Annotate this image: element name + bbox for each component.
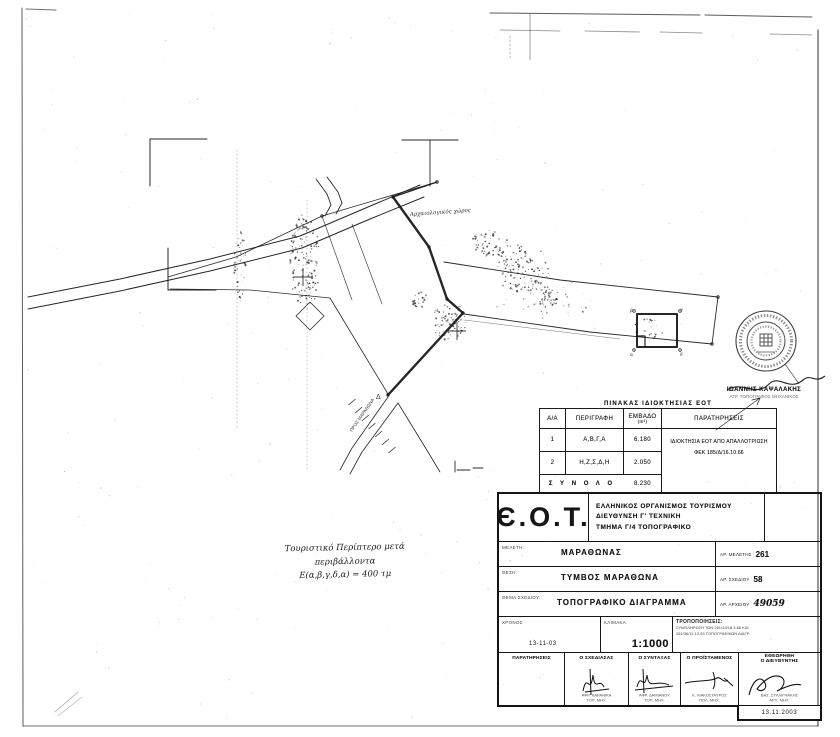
handnote-line1: Τουριστικό Περίπτερο μετά περιβάλλοντα xyxy=(255,540,436,571)
vegetation-dot xyxy=(505,261,506,262)
vegetation-dot xyxy=(521,246,523,248)
vegetation-dot xyxy=(624,110,625,111)
vegetation-dot xyxy=(235,266,236,267)
vegetation-dot xyxy=(413,302,415,304)
vegetation-dot xyxy=(241,259,242,260)
vegetation-dot xyxy=(286,348,287,349)
vegetation-dot xyxy=(460,304,461,305)
vegetation-dot xyxy=(533,303,535,305)
vegetation-dot xyxy=(780,486,781,487)
vegetation-dot xyxy=(121,171,122,172)
vegetation-dot xyxy=(243,291,244,292)
vegetation-dot xyxy=(505,276,506,277)
vegetation-dot xyxy=(310,303,311,304)
vegetation-dot xyxy=(528,262,530,264)
vegetation-dot xyxy=(309,297,310,298)
vegetation-dot xyxy=(145,582,146,583)
thema-label: ΘΕΜΑ ΣΧΕΔΙΟΥ: xyxy=(502,595,541,600)
vegetation-dot xyxy=(521,249,522,250)
vegetation-dot xyxy=(448,338,449,339)
vegetation-dot xyxy=(296,224,298,226)
vegetation-dot xyxy=(244,277,245,278)
vegetation-dot xyxy=(449,323,451,325)
thema-value: ΤΟΠΟΓΡΑΦΙΚΟ ΔΙΑΓΡΑΜΜΑ xyxy=(557,598,687,607)
vegetation-dot xyxy=(533,271,535,273)
vegetation-dot xyxy=(387,626,388,627)
vegetation-dot xyxy=(505,281,507,283)
proistamenos-title-line: ΠΟΛ. ΜΗΧ. xyxy=(687,698,733,703)
vegetation-dot xyxy=(485,233,487,235)
syntaxas-name: ΑΦΡ. ΔΑΜΙΑΝΟΥ ΤΟΠ. ΜΗΧ. xyxy=(634,694,675,703)
vegetation-dot xyxy=(472,238,474,240)
vegetation-dot xyxy=(532,288,533,289)
vegetation-dot xyxy=(453,313,454,314)
vegetation-dot xyxy=(302,224,304,226)
vegetation-dot xyxy=(444,318,445,319)
org-line1: ΕΛΛΗΝΙΚΟΣ ΟΡΓΑΝΙΣΜΟΣ ΤΟΥΡΙΣΜΟΥ xyxy=(596,502,764,512)
vegetation-dot xyxy=(458,333,459,334)
vegetation-dot xyxy=(460,319,462,321)
vegetation-dot xyxy=(443,317,444,318)
vegetation-dot xyxy=(236,243,237,244)
vegetation-dot xyxy=(316,263,317,264)
survey-peg xyxy=(679,349,682,352)
vegetation-dot xyxy=(563,305,565,307)
vegetation-dot xyxy=(314,271,315,272)
vegetation-dot xyxy=(522,273,524,275)
vegetation-dot xyxy=(299,291,300,292)
ar-sxediou-cell: ΑΡ. ΣΧΕΔΙΟΥ 58 xyxy=(716,567,820,591)
vegetation-dot xyxy=(308,286,310,288)
vegetation-dot xyxy=(654,336,656,338)
vegetation-dot xyxy=(243,240,245,242)
vegetation-dot xyxy=(165,40,166,41)
vegetation-dot xyxy=(415,295,416,296)
vegetation-dot xyxy=(184,597,185,598)
ar-meletis-cell: ΑΡ. ΜΕΛΕΤΗΣ 261 xyxy=(716,542,820,566)
vegetation-dot xyxy=(373,179,374,180)
vegetation-dot xyxy=(477,240,478,241)
vegetation-dot xyxy=(544,296,546,298)
vegetation-dot xyxy=(297,300,299,302)
signature-row: ΠΑΡΑΤΗΡΗΣΕΙΣ Ο ΣΧΕΔΙΑΣΑΣ ΑΦΡ. ΚΑΡΑΝΙΚΑ Τ… xyxy=(499,653,820,705)
vegetation-dot xyxy=(502,252,503,253)
vegetation-dot xyxy=(485,89,486,90)
vegetation-dot xyxy=(550,302,551,303)
road-hatch-tick xyxy=(382,439,389,445)
vegetation-dot xyxy=(794,482,795,483)
vegetation-dot xyxy=(498,238,500,240)
vegetation-dot xyxy=(593,325,594,326)
vegetation-dot xyxy=(530,262,531,263)
vegetation-dot xyxy=(541,289,543,291)
vegetation-dot xyxy=(299,227,301,229)
vegetation-dot xyxy=(492,470,493,471)
vegetation-dot xyxy=(530,260,532,262)
vegetation-dot xyxy=(476,247,478,249)
vegetation-dot xyxy=(310,292,311,293)
vegetation-dot xyxy=(452,324,453,325)
vegetation-dot xyxy=(349,293,350,294)
vegetation-dot xyxy=(540,282,542,284)
vegetation-dot xyxy=(481,250,483,252)
vegetation-dot xyxy=(292,235,294,237)
vegetation-dot xyxy=(124,100,125,101)
vegetation-dot xyxy=(125,134,126,135)
vegetation-dot xyxy=(568,306,570,308)
vegetation-dot xyxy=(581,306,582,307)
vegetation-dot xyxy=(453,323,454,324)
vegetation-dot xyxy=(312,281,314,283)
vegetation-dot xyxy=(43,129,44,130)
vegetation-dot xyxy=(465,322,466,323)
vegetation-dot xyxy=(295,232,296,233)
vegetation-dot xyxy=(310,251,311,252)
vegetation-dot xyxy=(473,176,474,177)
vegetation-dot xyxy=(426,712,427,713)
vegetation-dot xyxy=(514,259,515,260)
tropopoiiseis-cell: ΤΡΟΠΟΠΟΙΗΣΕΙΣ: ΣΥΜΠΛΗΡΩΣΗ ΤΩΝ 261/13/18.… xyxy=(673,617,820,652)
vegetation-dot xyxy=(543,254,544,255)
vegetation-dot xyxy=(400,528,401,529)
vegetation-dot xyxy=(421,534,422,535)
vegetation-dot xyxy=(644,330,646,332)
vegetation-dot xyxy=(525,289,526,290)
vegetation-dot xyxy=(497,266,498,267)
map-line xyxy=(490,13,700,15)
vegetation-dot xyxy=(424,298,425,299)
total-label: Σ Υ Ν Ο Λ Ο xyxy=(540,475,624,493)
vegetation-dot xyxy=(491,103,492,104)
map-line xyxy=(398,403,440,472)
vegetation-dot xyxy=(543,373,544,374)
vegetation-dot xyxy=(517,272,518,273)
vegetation-dot xyxy=(108,667,109,668)
vegetation-dot xyxy=(302,228,304,230)
vegetation-dot xyxy=(449,308,451,310)
vegetation-dot xyxy=(493,236,494,237)
sxediasas-title-line: ΤΟΠ. ΜΗΧ. xyxy=(571,698,621,703)
vegetation-dot xyxy=(488,637,489,638)
vegetation-dot xyxy=(307,303,308,304)
vegetation-dot xyxy=(543,91,544,92)
vegetation-dot xyxy=(492,579,493,580)
map-line xyxy=(22,8,23,726)
vegetation-dot xyxy=(292,248,293,249)
vegetation-dot xyxy=(453,321,454,322)
vegetation-dot xyxy=(552,304,554,306)
vegetation-dot xyxy=(270,181,271,182)
vegetation-dot xyxy=(476,236,477,237)
vegetation-dot xyxy=(540,251,541,252)
org-line2: ΔΙΕΥΘΥΝΣΗ Γ' ΤΕΧΝΙΚΗ xyxy=(596,512,764,522)
vegetation-dot xyxy=(422,297,424,299)
vegetation-dot xyxy=(242,293,243,294)
vegetation-dot xyxy=(483,253,484,254)
vegetation-dot xyxy=(443,643,444,644)
vegetation-dot xyxy=(445,245,446,246)
road-hatch-tick xyxy=(349,399,356,405)
vegetation-dot xyxy=(236,268,237,269)
vegetation-dot xyxy=(240,300,241,301)
vegetation-dot xyxy=(552,290,553,291)
vegetation-dot xyxy=(307,223,308,224)
vegetation-dot xyxy=(563,287,564,288)
vegetation-dot xyxy=(519,127,520,128)
vegetation-dot xyxy=(547,299,548,300)
vegetation-dot xyxy=(479,562,480,563)
vegetation-dot xyxy=(537,267,539,269)
vegetation-dot xyxy=(509,269,511,271)
vegetation-dot xyxy=(395,22,396,23)
map-line xyxy=(316,179,331,216)
vegetation-dot xyxy=(546,276,547,277)
vegetation-dot xyxy=(356,106,357,107)
vegetation-dot xyxy=(792,86,793,87)
vegetation-dot xyxy=(482,243,483,244)
vegetation-dot xyxy=(510,283,512,285)
map-line xyxy=(28,197,424,309)
vegetation-dot xyxy=(516,253,517,254)
vegetation-dot xyxy=(520,257,522,259)
vegetation-dot xyxy=(252,332,253,333)
vegetation-dot xyxy=(518,269,519,270)
klimaka-value: 1:1000 xyxy=(632,638,669,650)
vegetation-dot xyxy=(496,306,498,308)
vegetation-dot xyxy=(444,334,446,336)
vegetation-dot xyxy=(332,29,333,30)
vegetation-dot xyxy=(302,269,304,271)
vegetation-dot xyxy=(309,272,310,273)
xronos-value: 13-11-03 xyxy=(529,641,557,647)
vegetation-dot xyxy=(506,239,508,241)
scanned-survey-sheet: Αρχαιολογικός χώροςΠΡΟΣ ΜΑΡΑΘΩΝΑΔβγαδ ΠΙ… xyxy=(0,0,840,737)
map-label: α xyxy=(630,353,633,358)
vegetation-dot xyxy=(452,319,454,321)
vegetation-dot xyxy=(412,300,413,301)
vegetation-dot xyxy=(545,292,546,293)
vegetation-dot xyxy=(242,263,243,264)
vegetation-dot xyxy=(507,245,509,247)
vegetation-dot xyxy=(447,319,448,320)
vegetation-dot xyxy=(238,608,239,609)
vegetation-dot xyxy=(51,88,52,89)
vegetation-dot xyxy=(299,186,300,187)
vegetation-dot xyxy=(438,326,440,328)
vegetation-dot xyxy=(446,673,447,674)
vegetation-dot xyxy=(298,259,300,261)
vegetation-dot xyxy=(528,269,529,270)
vegetation-dot xyxy=(475,249,477,251)
vegetation-dot xyxy=(294,287,296,289)
vegetation-dot xyxy=(584,26,585,27)
road-hatch-tick xyxy=(369,423,376,429)
vegetation-dot xyxy=(327,591,328,592)
vegetation-dot xyxy=(583,293,584,294)
vegetation-dot xyxy=(294,233,295,234)
vegetation-dot xyxy=(306,230,307,231)
vegetation-dot xyxy=(571,282,572,283)
vegetation-dot xyxy=(641,260,642,261)
vegetation-dot xyxy=(474,235,476,237)
vegetation-dot xyxy=(311,277,313,279)
vegetation-dot xyxy=(568,315,569,316)
map-line xyxy=(705,15,812,17)
vegetation-dot xyxy=(350,37,351,38)
vegetation-dot xyxy=(510,259,512,261)
vegetation-dot xyxy=(300,302,301,303)
vegetation-dot xyxy=(421,306,423,308)
vegetation-dot xyxy=(542,273,543,274)
vegetation-dot xyxy=(456,541,457,542)
vegetation-dot xyxy=(486,246,488,248)
vegetation-dot xyxy=(515,261,517,263)
vegetation-dot xyxy=(306,297,308,299)
vegetation-dot xyxy=(502,256,503,257)
vegetation-dot xyxy=(460,306,461,307)
vegetation-dot xyxy=(526,261,528,263)
vegetation-dot xyxy=(448,322,449,323)
vegetation-dot xyxy=(304,290,305,291)
vegetation-dot xyxy=(456,314,458,316)
vegetation-dot xyxy=(301,252,302,253)
vegetation-dot xyxy=(311,248,313,250)
vegetation-dot xyxy=(237,286,238,287)
map-line xyxy=(770,34,812,35)
vegetation-dot xyxy=(543,304,544,305)
vegetation-dot xyxy=(524,255,526,257)
vegetation-dot xyxy=(434,312,435,313)
vegetation-dot xyxy=(311,273,313,275)
vegetation-dot xyxy=(542,314,543,315)
vegetation-dot xyxy=(295,628,296,629)
vegetation-dot xyxy=(550,291,552,293)
org-line3: ΤΜΗΜΑ Γ/4 ΤΟΠΟΓΡΑΦΙΚΟ xyxy=(596,523,764,533)
vegetation-dot xyxy=(498,261,500,263)
vegetation-dot xyxy=(766,273,767,274)
vegetation-dot xyxy=(114,419,115,420)
vegetation-dot xyxy=(306,261,308,263)
vegetation-dot xyxy=(459,478,460,479)
vegetation-dot xyxy=(27,369,28,370)
vegetation-dot xyxy=(316,246,318,248)
vegetation-dot xyxy=(457,309,459,311)
vegetation-dot xyxy=(292,288,294,290)
vegetation-dot xyxy=(211,15,212,16)
proistamenos-name: Κ. ΛΙΑΚΟΣΤΑΥΡΟΣ ΠΟΛ. ΜΗΧ. xyxy=(687,694,733,703)
vegetation-dot xyxy=(294,257,295,258)
vegetation-dot xyxy=(513,265,514,266)
vegetation-dot xyxy=(455,319,456,320)
vegetation-dot xyxy=(542,301,543,302)
vegetation-dot xyxy=(67,433,68,434)
round-seal-stamp xyxy=(721,300,836,422)
vegetation-dot xyxy=(376,453,377,454)
vegetation-dot xyxy=(96,651,97,652)
vegetation-dot xyxy=(418,292,420,294)
vegetation-dot xyxy=(443,311,444,312)
vegetation-dot xyxy=(140,312,141,313)
sxediasas-label: Ο ΣΧΕΔΙΑΣΑΣ xyxy=(565,656,628,661)
vegetation-dot xyxy=(295,247,297,249)
vegetation-dot xyxy=(548,297,549,298)
vegetation-dot xyxy=(523,278,524,279)
map-label: γ xyxy=(680,308,683,313)
vegetation-dot xyxy=(797,49,798,50)
vegetation-dot xyxy=(158,625,159,626)
vegetation-dot xyxy=(519,250,521,252)
vegetation-dot xyxy=(546,312,548,314)
vegetation-dot xyxy=(179,605,180,606)
vegetation-dot xyxy=(510,271,512,273)
vegetation-dot xyxy=(315,275,317,277)
vegetation-dot xyxy=(422,301,424,303)
vegetation-dot xyxy=(577,388,578,389)
vegetation-dot xyxy=(305,264,306,265)
director-cell: ΕΘΕΩΡΗΘΗ Ο ΔΙΕΥΘΥΝΤΗΣ ΒΑΣ. ΣΥΛΛΙΓΝΑΚΗΣ Α… xyxy=(739,653,820,705)
vegetation-dot xyxy=(649,334,650,335)
map-line xyxy=(26,9,56,10)
vegetation-dot xyxy=(653,337,655,339)
vegetation-dot xyxy=(650,333,652,335)
vegetation-dot xyxy=(548,292,549,293)
vegetation-dot xyxy=(317,262,318,263)
vegetation-dot xyxy=(657,292,658,293)
vegetation-dot xyxy=(197,99,198,100)
vegetation-dot xyxy=(435,332,436,333)
map-label: Αρχαιολογικός χώρος xyxy=(409,207,472,218)
vegetation-dot xyxy=(550,299,552,301)
vegetation-dot xyxy=(312,286,314,288)
vegetation-dot xyxy=(453,113,454,114)
vegetation-dot xyxy=(656,326,657,327)
vegetation-dot xyxy=(411,25,412,26)
vegetation-dot xyxy=(295,237,297,239)
vegetation-dot xyxy=(50,247,51,248)
vegetation-dot xyxy=(490,235,491,236)
vegetation-dot xyxy=(503,272,504,273)
vegetation-dot xyxy=(534,269,535,270)
vegetation-dot xyxy=(649,319,651,321)
vegetation-dot xyxy=(79,482,80,483)
vegetation-dot xyxy=(518,264,520,266)
map-line xyxy=(464,320,620,339)
vegetation-dot xyxy=(476,234,477,235)
vegetation-dot xyxy=(301,215,302,216)
title-block: Є.Ο.Τ. ΕΛΛΗΝΙΚΟΣ ΟΡΓΑΝΙΣΜΟΣ ΤΟΥΡΙΣΜΟΥ ΔΙ… xyxy=(497,492,822,707)
vegetation-dot xyxy=(270,268,271,269)
vegetation-dot xyxy=(240,252,241,253)
vegetation-dot xyxy=(305,258,306,259)
vegetation-dot xyxy=(77,147,78,148)
road-hatch-tick xyxy=(389,447,396,453)
sxediasas-name: ΑΦΡ. ΚΑΡΑΝΙΚΑ ΤΟΠ. ΜΗΧ. xyxy=(571,694,621,703)
vegetation-dot xyxy=(296,226,298,228)
vegetation-dot xyxy=(548,273,549,274)
vegetation-dot xyxy=(308,283,309,284)
vegetation-dot xyxy=(101,75,102,76)
vegetation-dot xyxy=(512,252,513,253)
vegetation-dot xyxy=(594,328,595,329)
vegetation-dot xyxy=(642,337,643,338)
vegetation-dot xyxy=(301,245,303,247)
row1-desc: Α,Β,Γ,Α xyxy=(566,429,624,452)
vegetation-dot xyxy=(435,310,436,311)
vegetation-dot xyxy=(437,309,438,310)
vegetation-dot xyxy=(307,229,308,230)
vegetation-dot xyxy=(478,244,479,245)
vegetation-dot xyxy=(414,305,416,307)
